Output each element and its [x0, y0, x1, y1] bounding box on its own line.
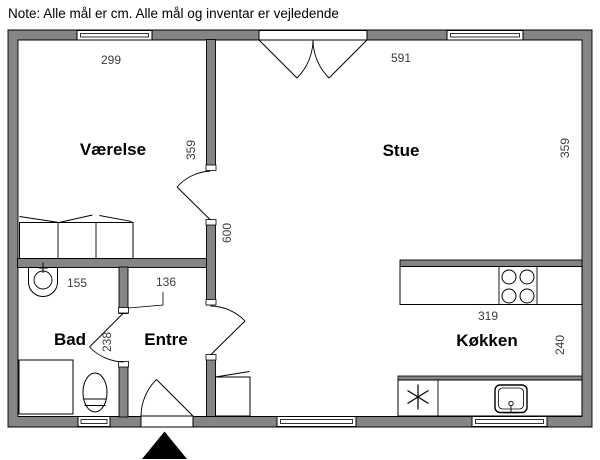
floorplan-drawing — [0, 0, 600, 460]
wall-mid-bottom — [207, 355, 216, 417]
dim-vaerelse-width: 299 — [101, 53, 121, 67]
shower-icon — [19, 360, 73, 414]
dim-bad-width: 155 — [67, 276, 87, 290]
entrance-arrow-icon — [142, 432, 187, 460]
kitchen-upper-counter — [400, 267, 582, 305]
wardrobe-icon — [20, 215, 134, 259]
dim-koekken-width: 319 — [478, 309, 498, 323]
kitchen-divider-strip — [400, 260, 582, 267]
kitchen-sink-icon — [495, 385, 527, 413]
cabinet-icon — [216, 372, 251, 417]
wall-mid-center — [207, 220, 216, 305]
dim-entre-width: 136 — [156, 275, 176, 289]
room-label-stue: Stue — [383, 141, 420, 161]
door-entre-stue — [211, 306, 246, 355]
toilet-icon — [83, 373, 107, 412]
dim-stue-width: 591 — [391, 51, 411, 65]
window-koekken — [472, 417, 547, 427]
room-label-koekken: Køkken — [456, 331, 517, 351]
dim-total-depth: 600 — [220, 223, 234, 243]
french-door — [259, 31, 367, 79]
room-label-bad: Bad — [54, 330, 86, 350]
dim-vaerelse-depth: 359 — [184, 140, 198, 160]
wall-bad-entre-top — [119, 267, 128, 314]
dim-leader-136 — [129, 292, 164, 308]
window-stue-bottom — [277, 417, 356, 427]
room-label-vaerelse: Værelse — [80, 140, 146, 160]
window-vaerelse — [77, 31, 152, 41]
front-door — [141, 380, 193, 428]
wall-bad-entre-bottom — [119, 362, 128, 417]
windows — [77, 31, 547, 427]
window-bad — [78, 417, 110, 427]
room-label-entre: Entre — [144, 330, 187, 350]
dim-stue-depth: 359 — [558, 138, 572, 158]
dim-koekken-depth: 240 — [553, 335, 567, 355]
window-stue-top — [447, 31, 523, 41]
wall-mid-top — [207, 40, 216, 171]
kitchen-lower-counter — [398, 376, 582, 416]
dim-bad-clearance: 238 — [100, 332, 114, 352]
wall-vaerelse-bad — [18, 259, 208, 268]
bathroom-sink-icon — [29, 263, 58, 297]
floorplan-canvas: Note: Alle mål er cm. Alle mål og invent… — [0, 0, 600, 460]
door-vaerelse — [177, 171, 211, 220]
